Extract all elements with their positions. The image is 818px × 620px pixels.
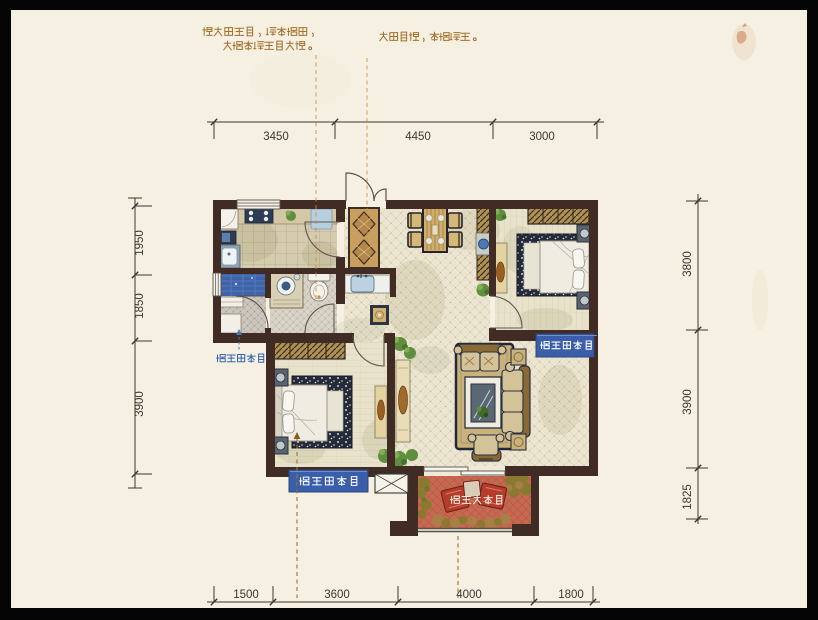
svg-text:4000: 4000 [456, 589, 482, 601]
svg-text:1850: 1850 [134, 293, 146, 319]
svg-text:3900: 3900 [682, 389, 694, 415]
svg-text:1825: 1825 [682, 484, 694, 510]
svg-text:3600: 3600 [324, 589, 350, 601]
svg-text:3800: 3800 [682, 251, 694, 277]
svg-text:1800: 1800 [558, 589, 584, 601]
svg-text:4450: 4450 [405, 131, 431, 143]
svg-text:3000: 3000 [529, 131, 555, 143]
svg-text:1950: 1950 [134, 230, 146, 256]
svg-text:3450: 3450 [263, 131, 289, 143]
svg-text:3900: 3900 [134, 391, 146, 417]
svg-text:1500: 1500 [233, 589, 259, 601]
